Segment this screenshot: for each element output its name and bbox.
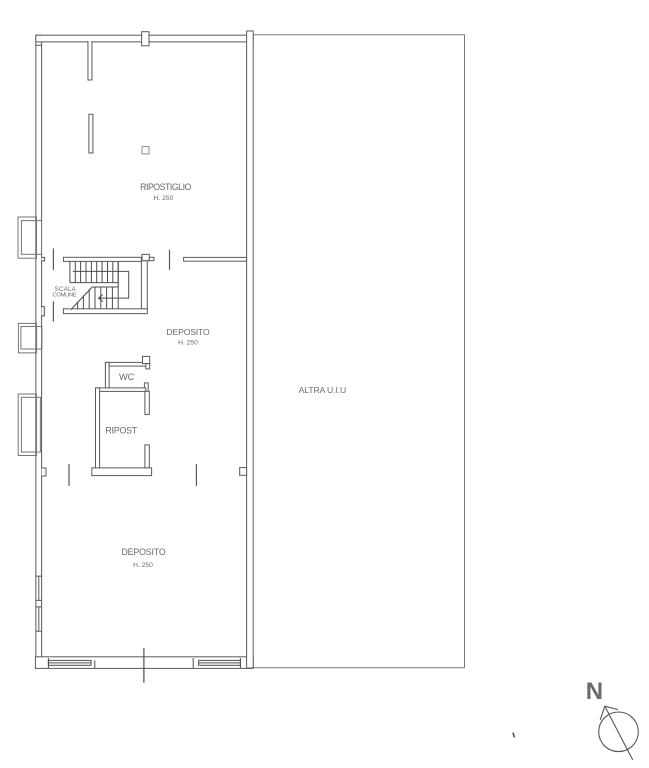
- svg-text:DEPOSITO: DEPOSITO: [166, 327, 210, 337]
- svg-text:H. 250: H. 250: [154, 195, 174, 202]
- svg-text:RIPOST: RIPOST: [105, 425, 137, 435]
- svg-text:DEPOSITO: DEPOSITO: [121, 547, 165, 557]
- svg-text:ALTRA U.I.U: ALTRA U.I.U: [299, 385, 346, 395]
- svg-text:H. 250: H. 250: [133, 562, 153, 569]
- svg-text:COMUNE: COMUNE: [53, 293, 77, 299]
- svg-text:WC: WC: [119, 372, 135, 382]
- svg-text:RIPOSTIGLIO: RIPOSTIGLIO: [140, 182, 191, 192]
- svg-text:H. 250: H. 250: [178, 339, 198, 346]
- svg-text:N: N: [586, 678, 603, 705]
